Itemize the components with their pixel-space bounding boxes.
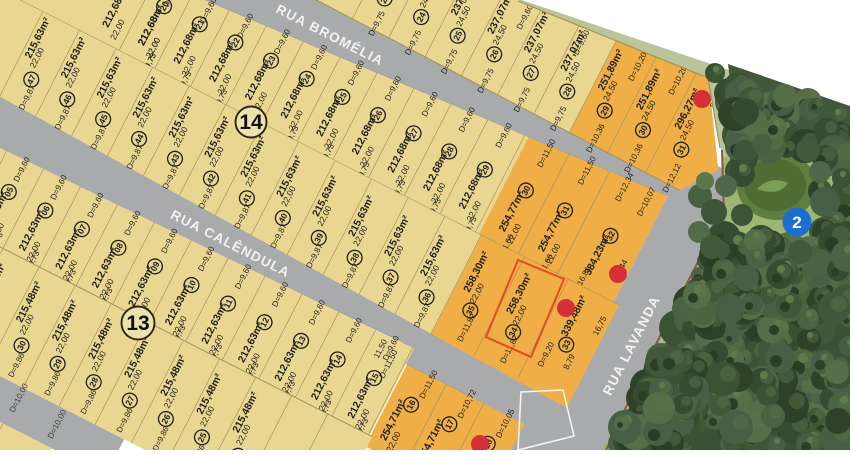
- svg-text:14: 14: [239, 111, 263, 134]
- svg-text:2: 2: [792, 213, 801, 232]
- svg-text:13: 13: [126, 312, 149, 335]
